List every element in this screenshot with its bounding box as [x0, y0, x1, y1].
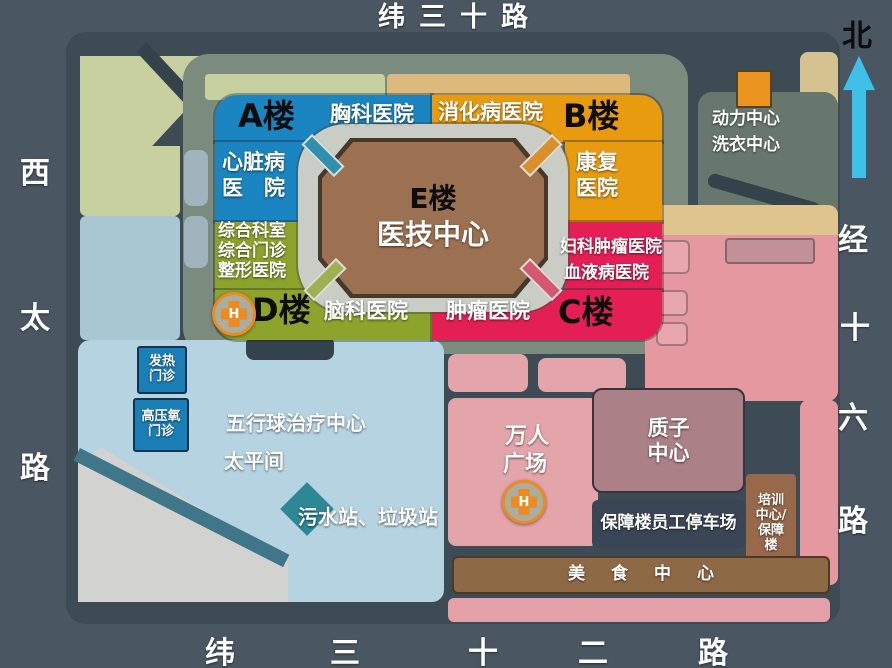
- proton-center-label-1: 质子: [648, 416, 690, 440]
- road-label-bottom: 三: [330, 628, 360, 668]
- power-building: [736, 70, 772, 108]
- heart-hospital-label-2: 医 院: [222, 176, 285, 200]
- food-center-label: 美食中心: [542, 565, 740, 585]
- building-e-label: E楼: [409, 185, 456, 213]
- five-ball-center-label: 五行球治疗中心: [226, 412, 366, 435]
- grand-square-label-2: 广场: [503, 452, 547, 477]
- road-label-right: 经: [838, 215, 868, 259]
- general-depts-label-1: 综合科室: [218, 222, 286, 242]
- building-block: [184, 216, 208, 268]
- road-label-right: 十: [840, 303, 870, 347]
- morgue-label: 太平间: [224, 450, 284, 473]
- proton-center-label-2: 中心: [648, 441, 690, 465]
- staff-parking-box: 保障楼员工停车场: [592, 500, 745, 548]
- food-center-strip: 美食中心: [452, 556, 830, 594]
- hematology-label: 血液病医院: [564, 264, 649, 284]
- road-label-right: 六: [838, 393, 868, 437]
- rehab-hospital-label-2: 医院: [576, 176, 618, 200]
- hyperbaric-clinic-label-1: 高压氧: [141, 410, 180, 425]
- fever-clinic-box: 发热 门诊: [137, 346, 187, 394]
- training-center-label-4: 楼: [764, 539, 777, 554]
- helipad-icon: H: [502, 480, 546, 524]
- rehab-hospital-label-1: 康复: [576, 150, 618, 174]
- gyn-oncology-label: 妇科肿瘤医院: [560, 238, 662, 258]
- road-label-bottom: 路: [698, 628, 728, 668]
- brain-hospital-label: 脑科医院: [324, 299, 408, 323]
- road-label-left: 西: [20, 148, 50, 192]
- fever-clinic-label-2: 门诊: [149, 370, 175, 385]
- training-center-label-3: 保障: [758, 524, 784, 539]
- medtech-center-label: 医技中心: [377, 219, 489, 251]
- oncology-hospital-label: 肿瘤医院: [446, 299, 530, 323]
- building-d-label: D楼: [252, 294, 311, 326]
- zone-khaki-left: [80, 146, 180, 216]
- general-depts-label-2: 综合门诊: [218, 242, 286, 262]
- building-a-label: A楼: [238, 100, 295, 132]
- helipad-letter: H: [215, 295, 253, 333]
- power-center-label-1: 动力中心: [712, 110, 780, 130]
- general-depts-label-3: 整形医院: [218, 262, 286, 282]
- training-center-label-1: 培训: [758, 494, 784, 509]
- zone-paleblue-left: [80, 216, 180, 340]
- zone-pink-right-tan-top: [645, 205, 838, 235]
- proton-center-box: 质子 中心: [592, 388, 745, 493]
- road-label-right: 路: [838, 496, 868, 540]
- road-label-left: 路: [20, 443, 50, 487]
- heart-hospital-label-1: 心脏病: [222, 150, 285, 174]
- building-c-label: C楼: [558, 296, 614, 328]
- zone-pink-block: [448, 354, 528, 392]
- building-block: [184, 150, 208, 206]
- hyperbaric-clinic-label-2: 门诊: [148, 425, 174, 440]
- digestive-hospital-label: 消化病医院: [438, 100, 543, 124]
- building-block: [656, 322, 688, 346]
- road-label-left: 太: [20, 293, 50, 337]
- building-block: [725, 238, 815, 264]
- road-label-top: 纬三十路: [330, 2, 590, 33]
- road-label-bottom: 十: [468, 628, 498, 668]
- zone-pink-block: [538, 358, 626, 392]
- hospital-campus-map: 动力中心 洗衣中心 发热 门诊 高压氧 门诊 五行球治疗中心 太平间 污水站、垃…: [0, 0, 892, 668]
- sewage-station-label: 污水站、垃圾站: [298, 506, 438, 529]
- zone-building-e: E楼 医技中心: [322, 142, 544, 294]
- road-label-bottom: 二: [578, 628, 608, 668]
- building-b-label: B楼: [563, 100, 619, 132]
- zone-pink-bottom-strip: [448, 598, 830, 622]
- grand-square-label-1: 万人: [505, 424, 549, 449]
- staff-parking-label: 保障楼员工停车场: [601, 514, 737, 534]
- hyperbaric-clinic-box: 高压氧 门诊: [133, 398, 189, 452]
- chest-hospital-label: 胸科医院: [330, 102, 414, 126]
- fever-clinic-label-1: 发热: [149, 355, 175, 370]
- north-label: 北: [842, 22, 872, 52]
- road-label-bottom: 纬: [205, 628, 235, 668]
- north-arrow-icon: [843, 56, 875, 178]
- training-center-label-2: 中心/: [756, 509, 787, 524]
- helipad-icon: H: [212, 292, 256, 336]
- power-center-label-2: 洗衣中心: [712, 136, 780, 156]
- helipad-letter: H: [505, 483, 543, 521]
